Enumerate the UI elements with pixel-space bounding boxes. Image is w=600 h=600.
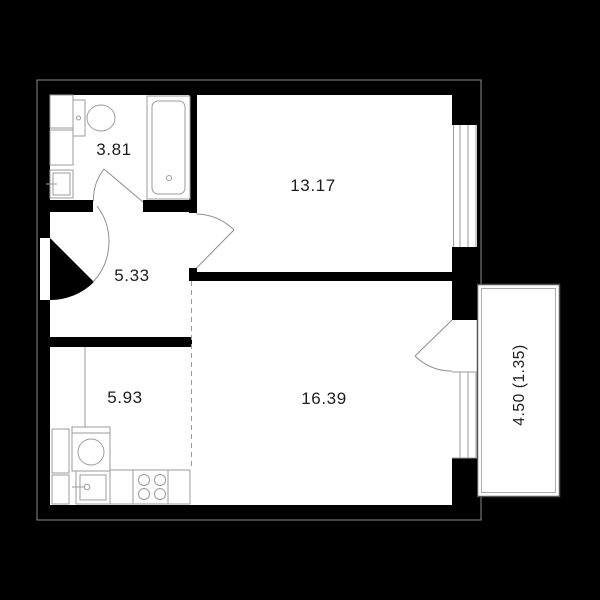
wall-hallway-kitchen xyxy=(40,337,192,347)
hallway-area-label: 5.33 xyxy=(114,266,150,285)
wall-bathroom-bottom-left xyxy=(50,200,93,212)
wall-right-bottom xyxy=(452,458,477,517)
wall-left-lower xyxy=(40,300,50,517)
washing-machine xyxy=(72,427,110,471)
toilet-tank xyxy=(73,100,85,136)
wall-left-upper xyxy=(40,83,50,238)
wall-right-top xyxy=(452,83,477,125)
floor-plan-stage: 3.81 13.17 5.33 5.93 16.39 4.50 (1.35) xyxy=(0,0,600,600)
balcony-area-label: 4.50 (1.35) xyxy=(511,344,528,426)
wall-livingroom-door-stub xyxy=(189,268,197,281)
wall-bottom xyxy=(40,505,477,517)
wall-living-bedroom-divider xyxy=(197,272,452,281)
kitchen-cabinets xyxy=(52,429,69,504)
bathroom-cabinets xyxy=(50,95,73,165)
living-room-area-label: 13.17 xyxy=(290,176,336,195)
kitchen-area-label: 5.93 xyxy=(107,388,143,407)
wall-bathroom-bottom-right xyxy=(143,200,197,212)
bathroom-area-label: 3.81 xyxy=(96,140,132,159)
wall-right-middle xyxy=(452,247,477,320)
bathtub xyxy=(147,96,190,199)
washbasin xyxy=(46,170,73,198)
toilet-bowl xyxy=(87,105,115,131)
floor-plan-svg: 3.81 13.17 5.33 5.93 16.39 4.50 (1.35) xyxy=(0,0,600,600)
kitchen-sink xyxy=(72,471,110,504)
bedroom-area-label: 16.39 xyxy=(301,389,347,408)
wall-top xyxy=(40,83,477,95)
stove xyxy=(133,470,168,504)
